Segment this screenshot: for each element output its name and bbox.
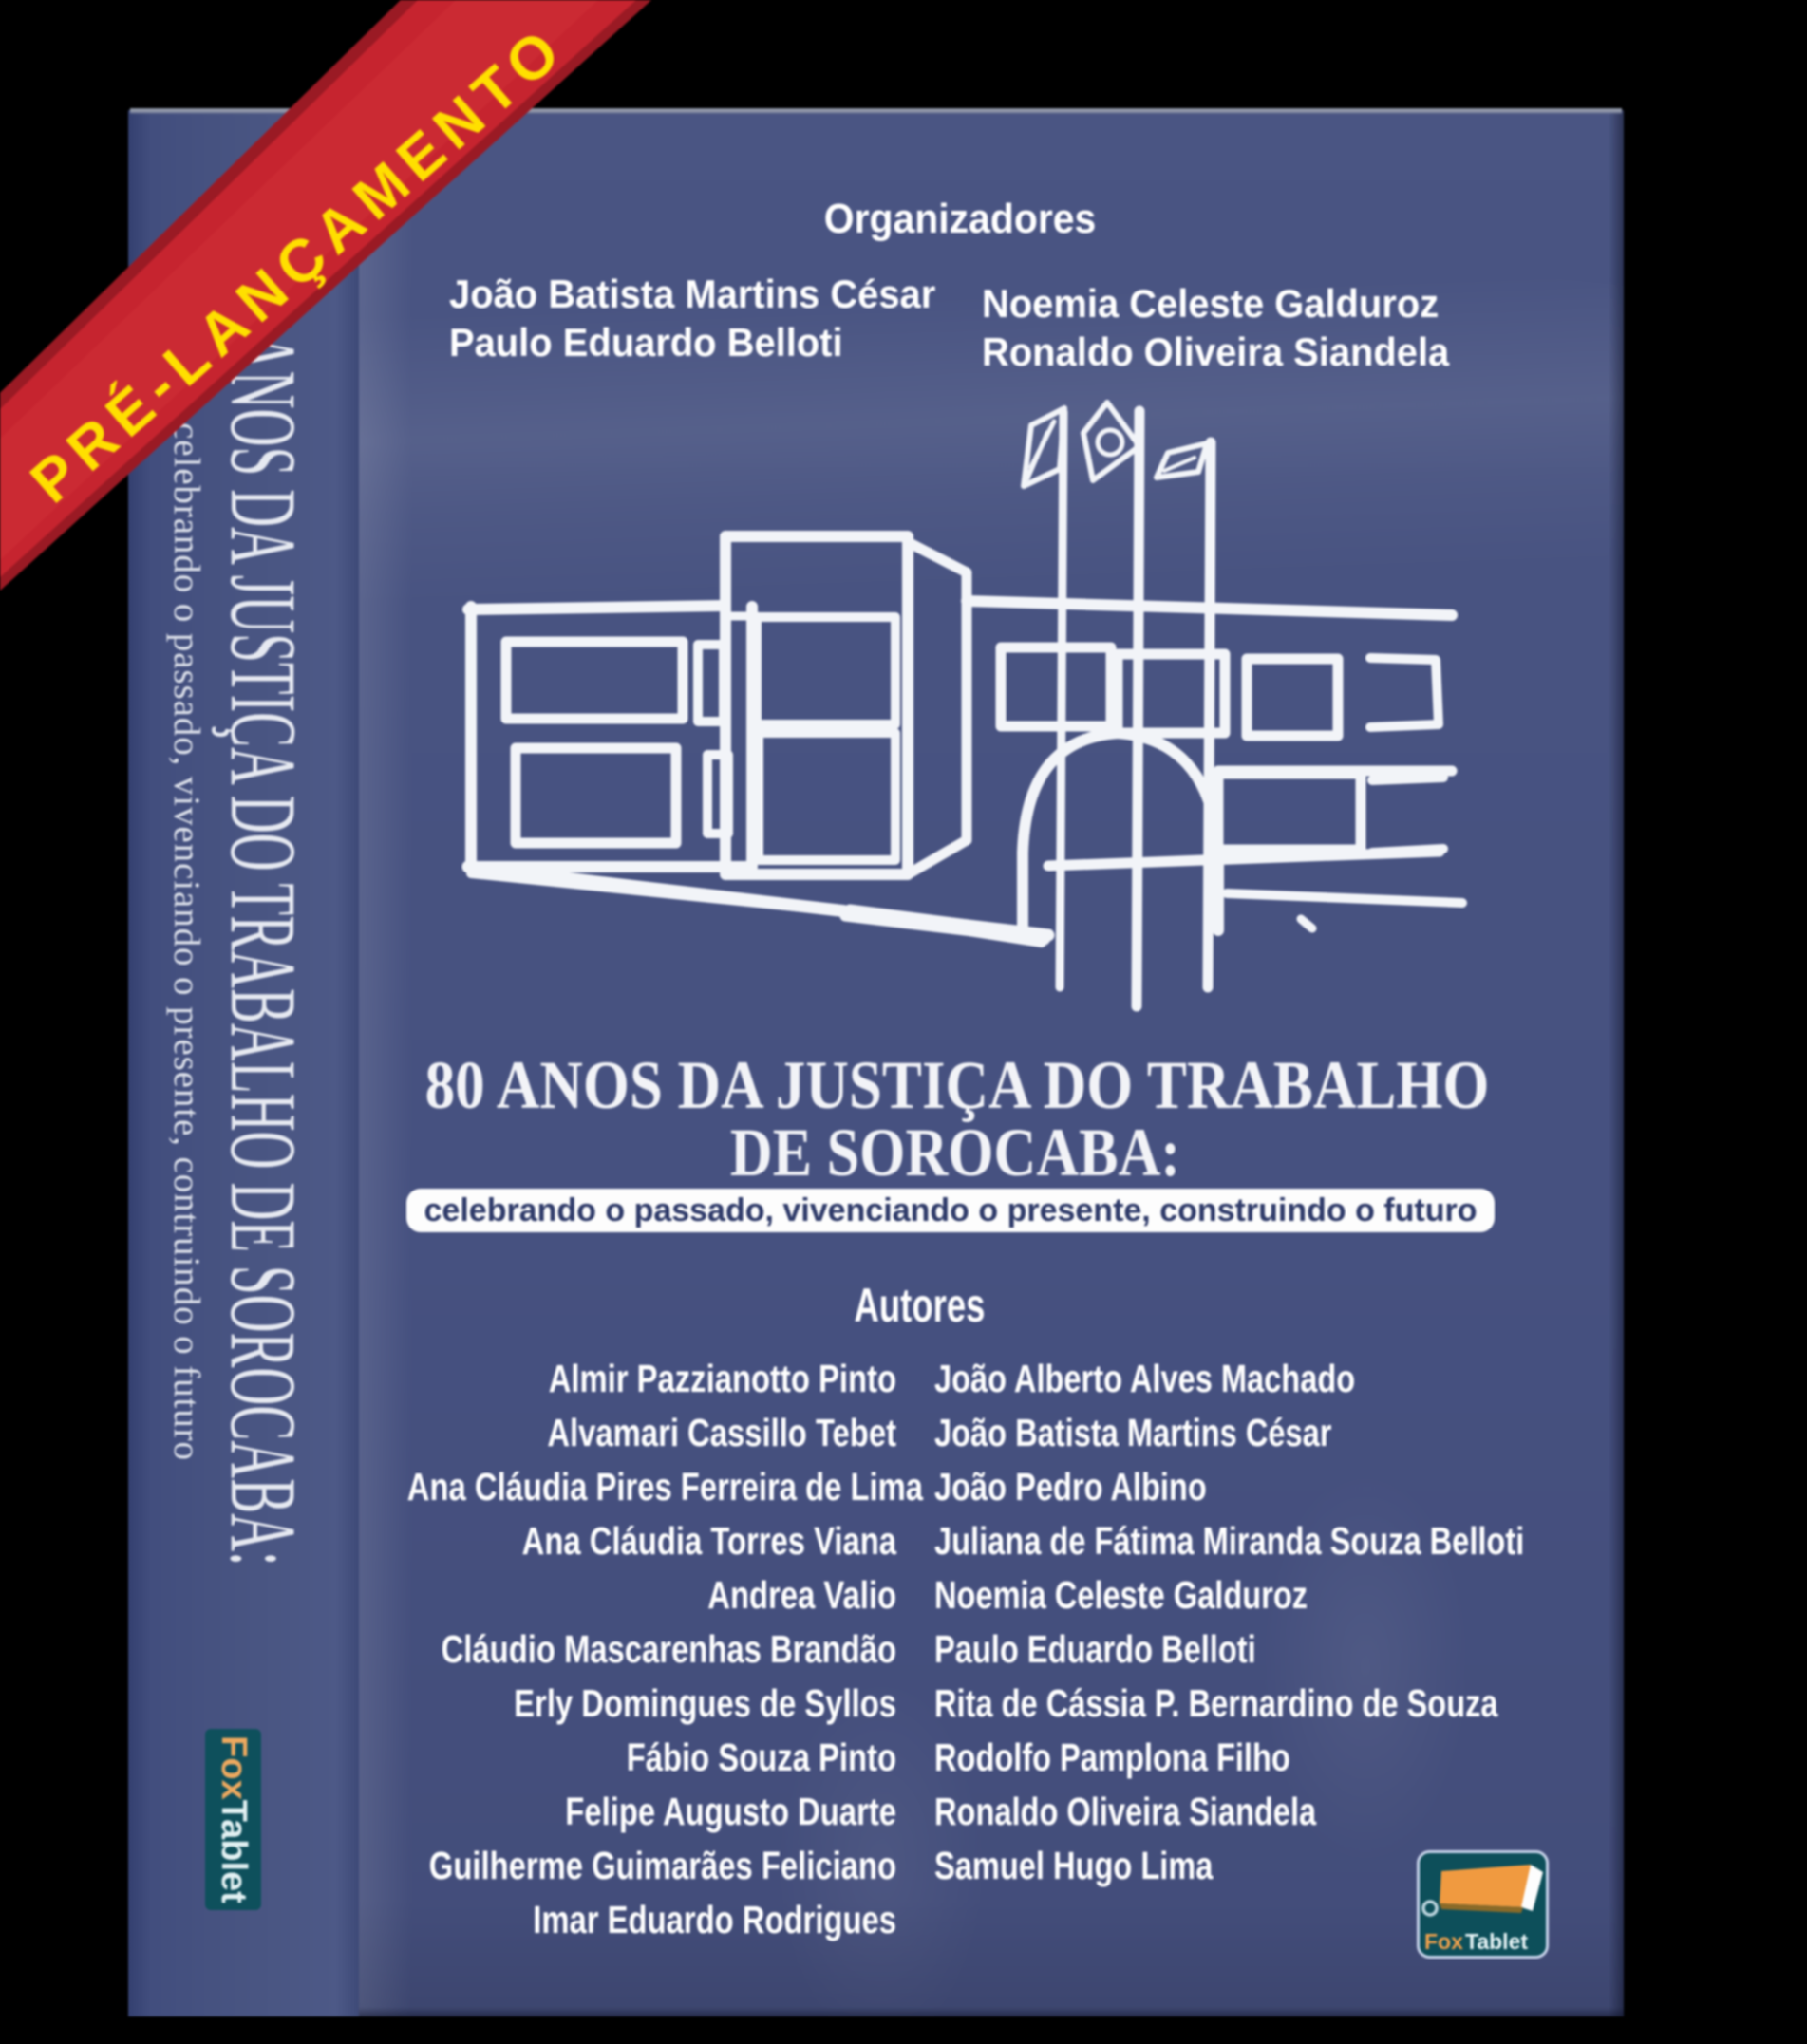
svg-text:PRÉ-LANÇAMENTO: PRÉ-LANÇAMENTO (18, 12, 578, 516)
svg-text:Fox: Fox (1424, 1929, 1463, 1954)
svg-text:Tablet: Tablet (1465, 1929, 1528, 1954)
